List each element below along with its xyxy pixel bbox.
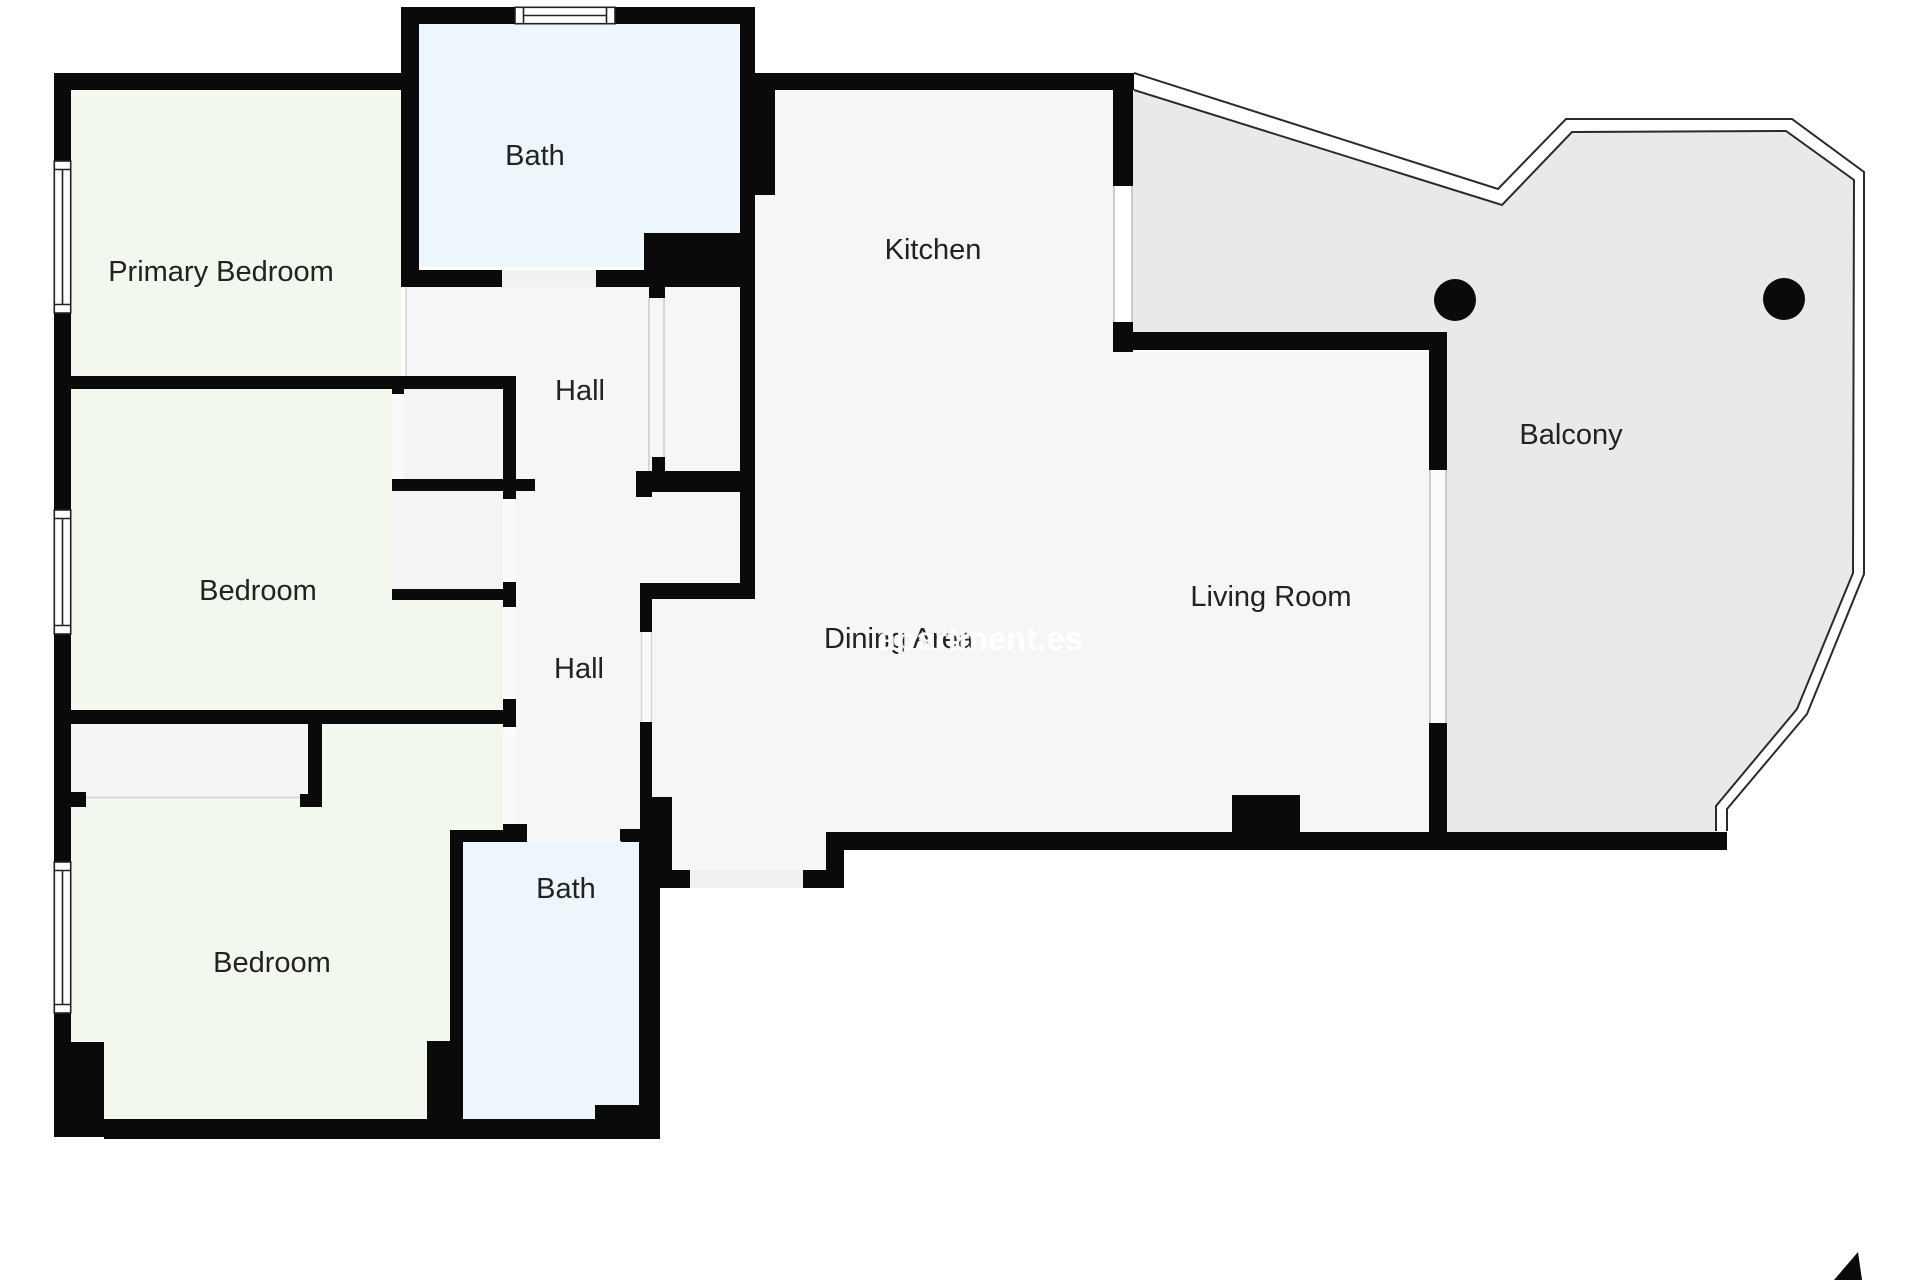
svg-text:Primary Bedroom: Primary Bedroom <box>108 256 334 288</box>
svg-text:Bedroom: Bedroom <box>199 575 317 607</box>
svg-text:Living Room: Living Room <box>1190 581 1351 613</box>
svg-text:Kitchen: Kitchen <box>885 234 982 266</box>
svg-text:Hall: Hall <box>554 653 604 685</box>
svg-text:Bedroom: Bedroom <box>213 947 331 979</box>
svg-text:Hall: Hall <box>555 375 605 407</box>
svg-text:apartment.es: apartment.es <box>878 620 1083 657</box>
svg-text:Bath: Bath <box>536 873 596 905</box>
svg-text:Bath: Bath <box>505 140 565 172</box>
svg-text:Balcony: Balcony <box>1519 419 1623 451</box>
